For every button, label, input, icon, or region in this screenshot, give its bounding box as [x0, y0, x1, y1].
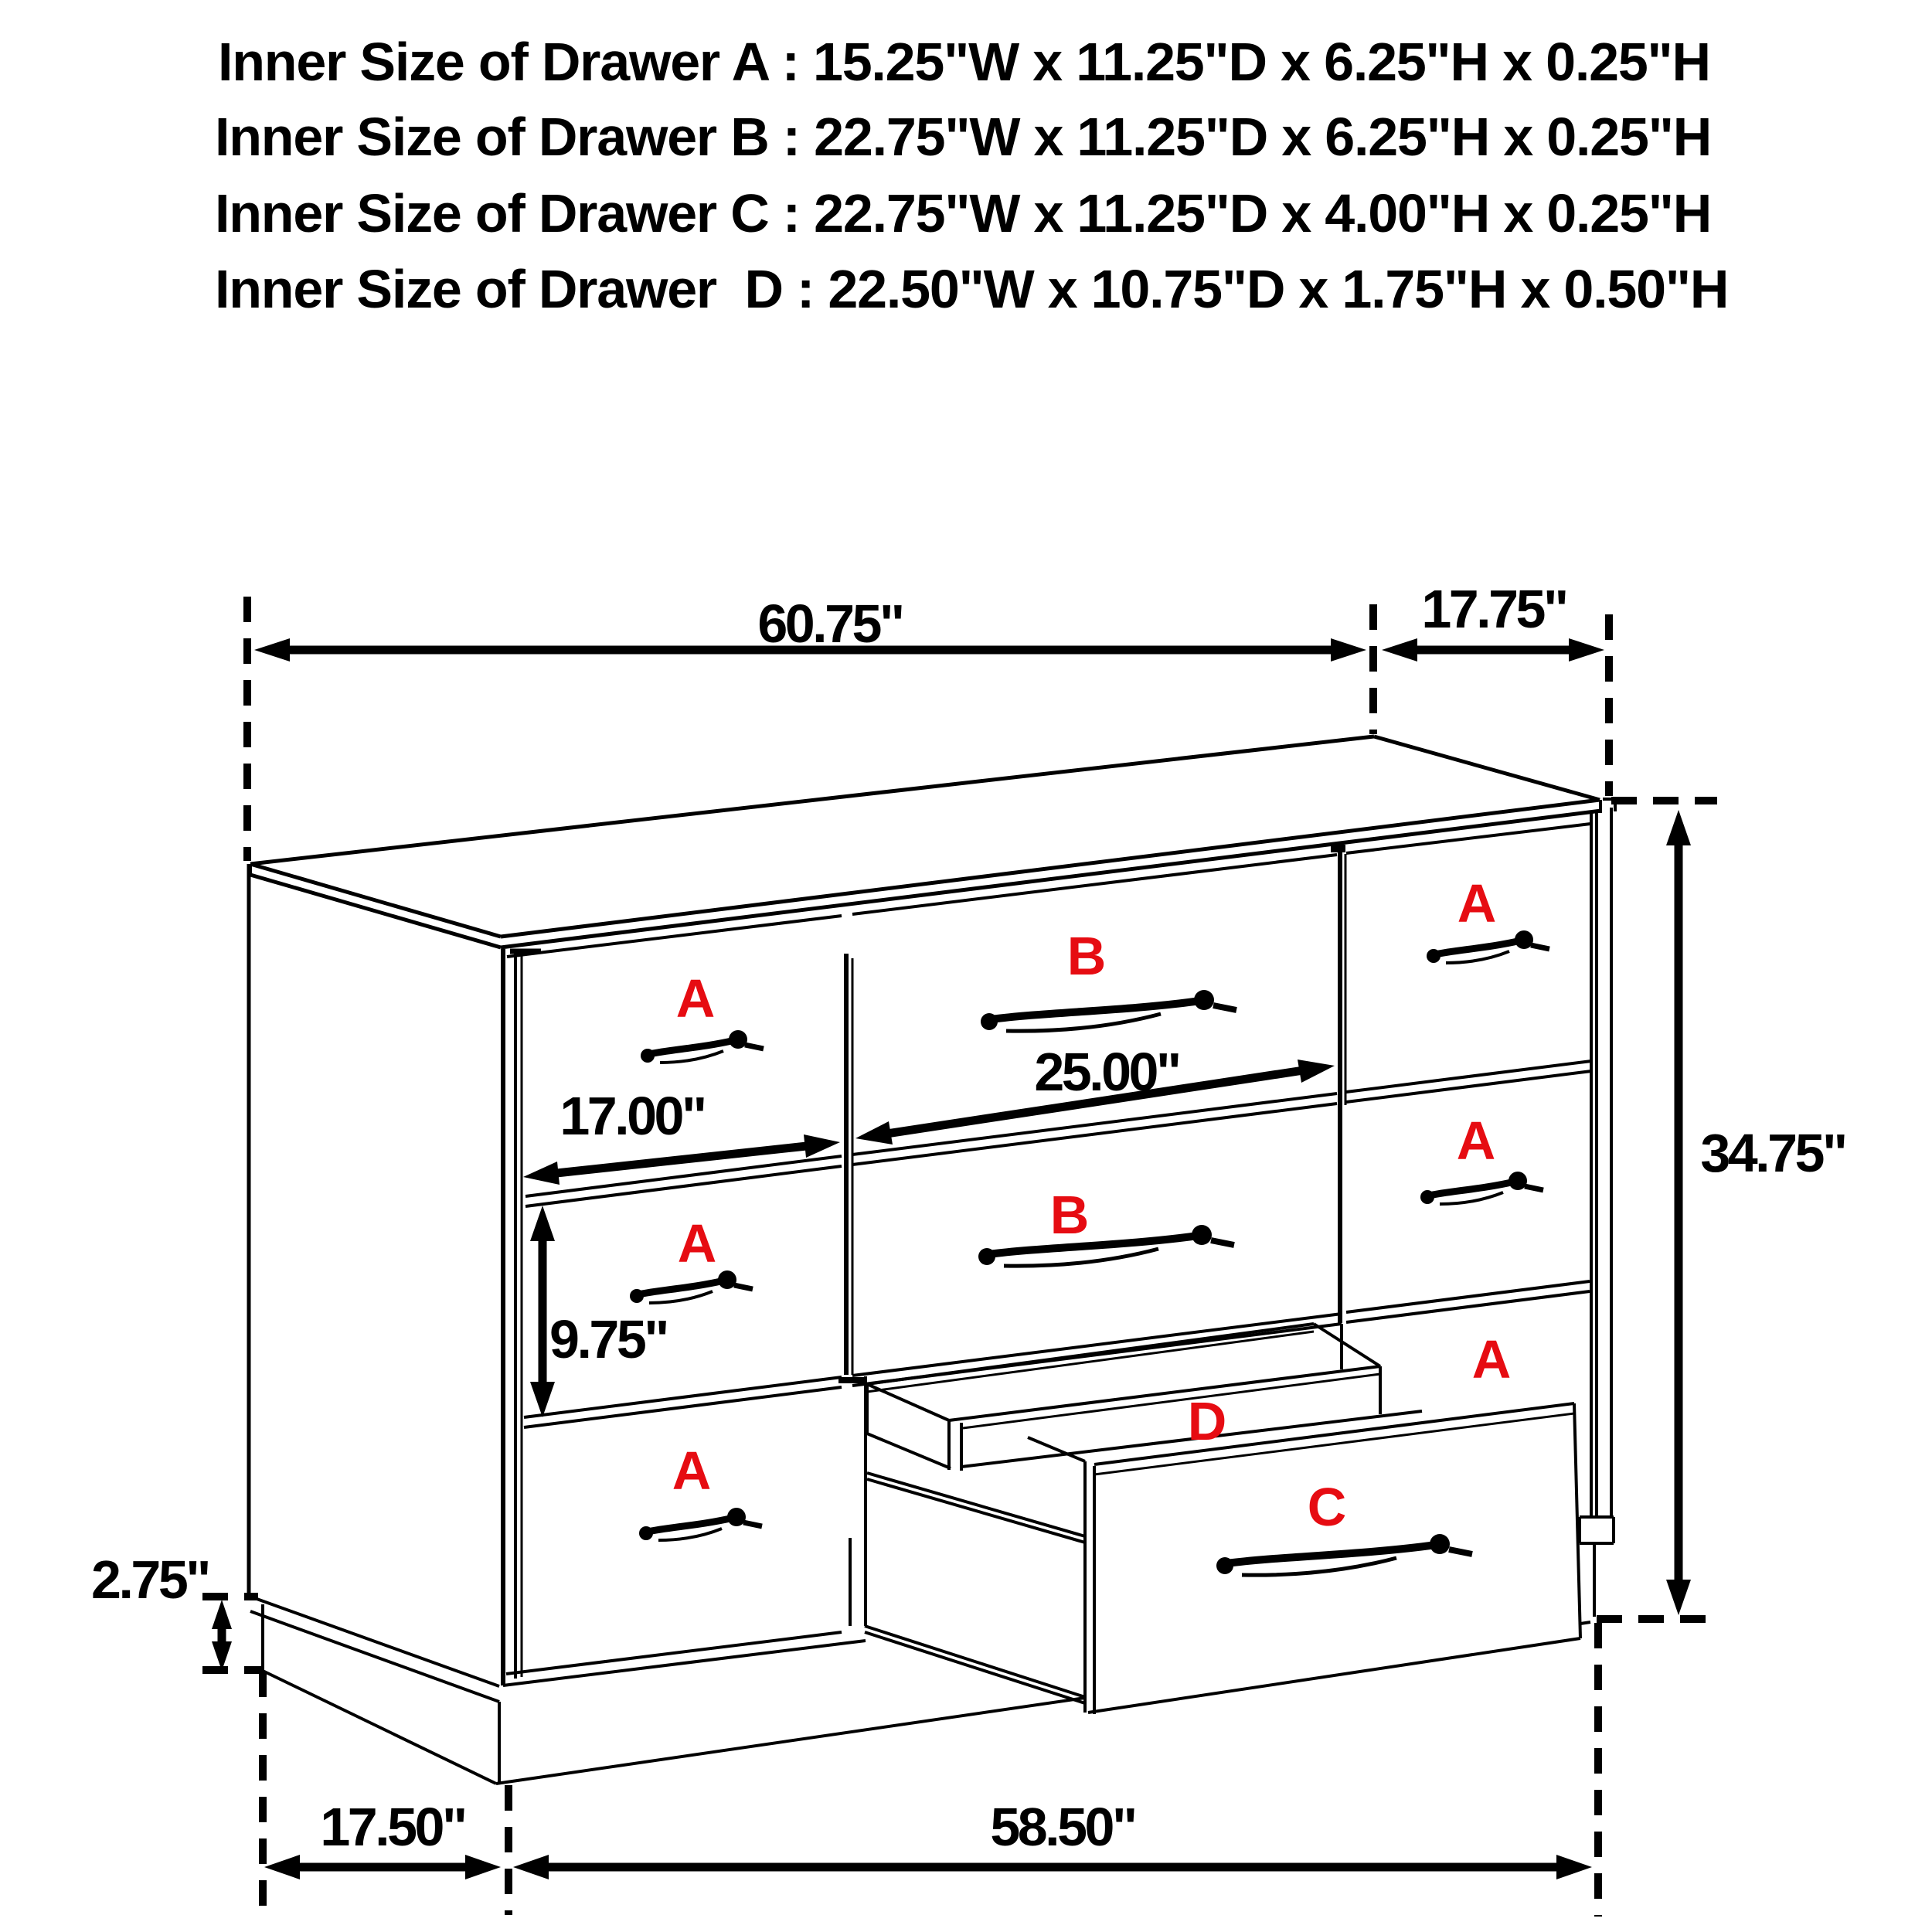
svg-text:58.50": 58.50" — [990, 1797, 1134, 1857]
svg-text:17.75": 17.75" — [1421, 579, 1566, 639]
svg-text:A: A — [1457, 1111, 1496, 1171]
svg-text:17.00": 17.00" — [560, 1086, 704, 1146]
svg-text:A: A — [1458, 873, 1497, 934]
svg-text:34.75": 34.75" — [1700, 1123, 1845, 1183]
svg-text:17.50": 17.50" — [320, 1797, 464, 1857]
svg-text:A: A — [676, 968, 716, 1029]
svg-text:60.75": 60.75" — [757, 594, 902, 654]
svg-text:2.75": 2.75" — [91, 1549, 209, 1610]
svg-text:A: A — [672, 1440, 712, 1501]
svg-text:25.00": 25.00" — [1034, 1042, 1179, 1102]
svg-text:B: B — [1050, 1185, 1090, 1245]
svg-text:A: A — [1472, 1329, 1512, 1389]
svg-text:D: D — [1188, 1391, 1227, 1451]
svg-text:C: C — [1308, 1477, 1347, 1537]
svg-text:9.75": 9.75" — [549, 1309, 667, 1369]
svg-text:B: B — [1067, 926, 1107, 986]
svg-text:A: A — [678, 1213, 717, 1274]
